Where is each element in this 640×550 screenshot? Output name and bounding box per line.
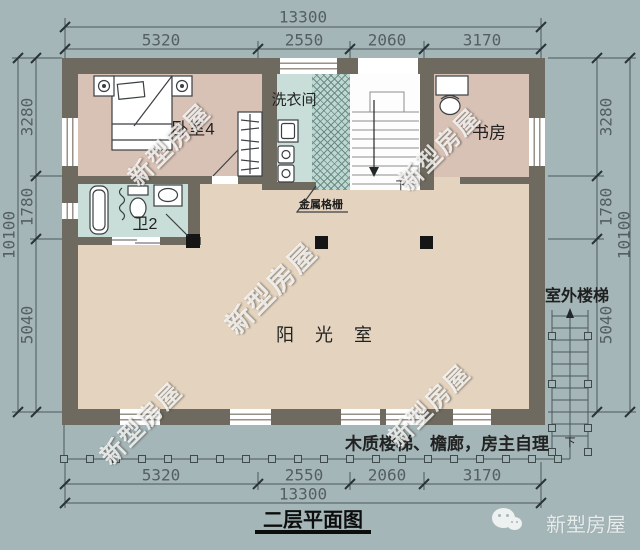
wechat-icon [492, 506, 526, 536]
dim-left-total: 10100 [0, 211, 19, 259]
dim-right-seg-3: 5040 [597, 306, 616, 345]
nightstand-lamp-right [172, 76, 192, 96]
dim-top-seg-1: 5320 [142, 31, 181, 50]
page-title: 二层平面图 [263, 504, 363, 533]
dim-bottom-seg-1: 5320 [142, 466, 181, 485]
dim-bottom-seg-4: 3170 [463, 466, 502, 485]
title-underline [255, 530, 371, 534]
bathroom-sink [154, 185, 182, 206]
washing-machine [278, 120, 298, 142]
bathroom-door-swing [166, 214, 188, 236]
outdoor-stairs-up-arrow [566, 308, 574, 318]
label-laundry: 洗衣间 [271, 89, 316, 110]
wardrobe [238, 112, 262, 176]
dim-top-total: 13300 [279, 8, 327, 27]
label-metal-grille: 金属格栅 [299, 196, 343, 212]
bathtub [90, 186, 108, 234]
bedroom-door-swing [213, 150, 238, 176]
dim-bottom-total: 13300 [279, 485, 327, 504]
label-outdoor-stairs: 室外楼梯 [545, 282, 609, 306]
dim-left-seg-3: 5040 [18, 306, 37, 345]
label-bathroom: 卫2 [133, 210, 158, 234]
note-wooden-stairs: 木质楼梯、檐廊，房主自理 [345, 430, 549, 455]
laundry-sinks [278, 146, 294, 182]
dim-top-seg-2: 2550 [285, 31, 324, 50]
dim-right-seg-2: 1780 [597, 188, 616, 227]
dim-right-total: 10100 [615, 211, 634, 259]
label-sunroom: 阳 光 室 [276, 321, 380, 347]
shower-curtain-line [120, 188, 125, 220]
dim-top-seg-3: 2060 [368, 31, 407, 50]
dim-left-seg-2: 1780 [18, 188, 37, 227]
nightstand-lamp-left [94, 76, 114, 96]
floor-plan-page: 13300 5320 2550 2060 3170 5320 2550 2060… [0, 0, 640, 550]
dim-left-seg-1: 3280 [18, 98, 37, 137]
dim-top-seg-4: 3170 [463, 31, 502, 50]
dim-bottom-seg-2: 2550 [285, 466, 324, 485]
brand-name: 新型房屋 [546, 509, 626, 538]
label-outdoor-stairs-down: 下 [565, 434, 576, 450]
desk [436, 76, 468, 95]
dim-right-seg-1: 3280 [597, 98, 616, 137]
dim-bottom-seg-3: 2060 [368, 466, 407, 485]
